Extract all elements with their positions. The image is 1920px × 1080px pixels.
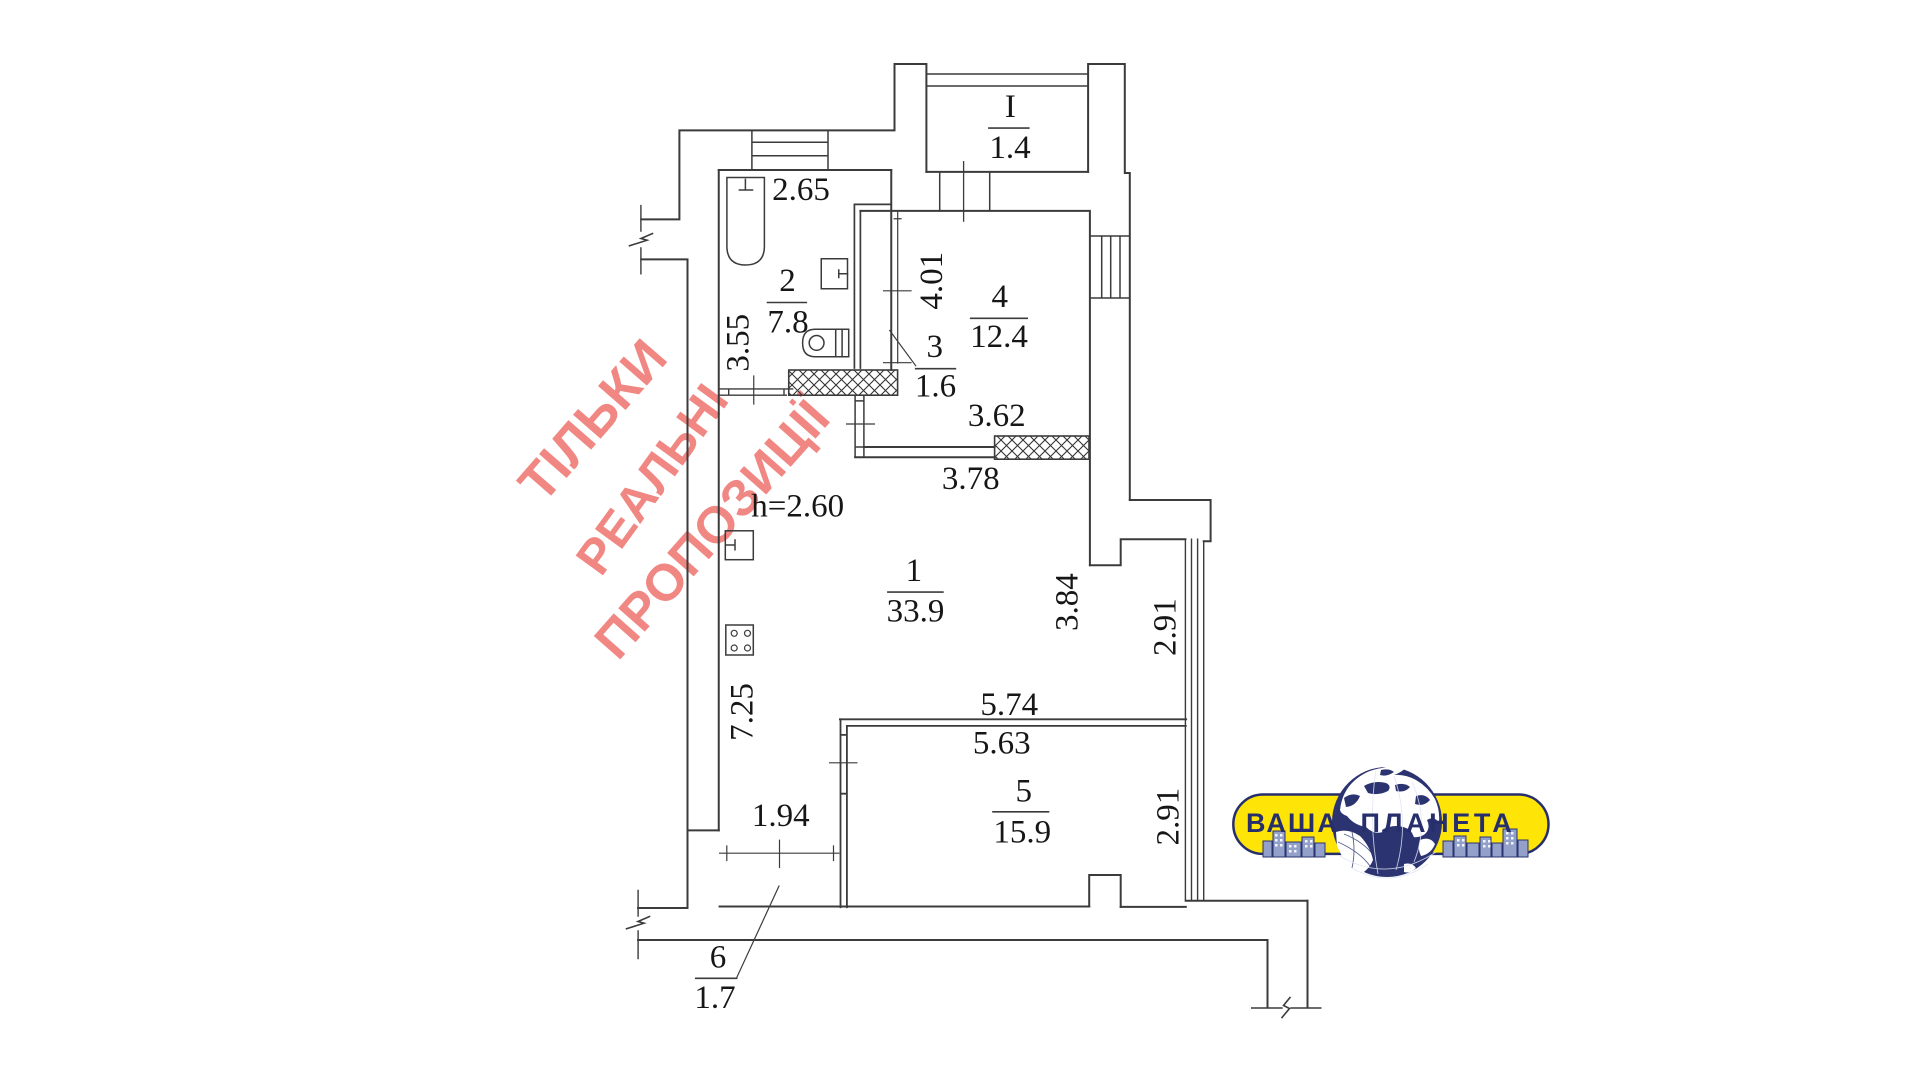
svg-text:h=2.60: h=2.60 bbox=[751, 489, 844, 525]
svg-text:15.9: 15.9 bbox=[993, 814, 1051, 850]
svg-text:1.6: 1.6 bbox=[915, 369, 956, 405]
svg-text:3.78: 3.78 bbox=[942, 461, 1000, 497]
svg-text:2: 2 bbox=[779, 263, 796, 299]
svg-text:1: 1 bbox=[906, 553, 923, 589]
svg-text:1.94: 1.94 bbox=[752, 798, 810, 834]
svg-text:3: 3 bbox=[927, 329, 944, 365]
svg-text:33.9: 33.9 bbox=[887, 594, 945, 630]
svg-text:2.91: 2.91 bbox=[1151, 788, 1187, 846]
svg-text:ВАША: ВАША bbox=[1246, 808, 1339, 838]
svg-text:3.62: 3.62 bbox=[968, 398, 1026, 434]
svg-text:I: I bbox=[1005, 89, 1016, 125]
svg-text:7.25: 7.25 bbox=[725, 683, 761, 741]
svg-text:7.8: 7.8 bbox=[767, 305, 808, 341]
svg-text:2.65: 2.65 bbox=[772, 172, 830, 208]
svg-text:3.84: 3.84 bbox=[1050, 573, 1086, 631]
svg-text:4.01: 4.01 bbox=[914, 252, 950, 310]
svg-text:4: 4 bbox=[991, 279, 1008, 315]
svg-text:5.63: 5.63 bbox=[973, 726, 1031, 762]
svg-text:1.7: 1.7 bbox=[694, 980, 735, 1016]
svg-text:5.74: 5.74 bbox=[980, 687, 1038, 723]
svg-text:2.91: 2.91 bbox=[1148, 598, 1184, 656]
svg-text:5: 5 bbox=[1016, 774, 1033, 810]
svg-text:1.4: 1.4 bbox=[989, 130, 1030, 166]
svg-text:3.55: 3.55 bbox=[721, 314, 757, 372]
svg-text:6: 6 bbox=[710, 940, 727, 976]
svg-text:ПЛАНЕТА: ПЛАНЕТА bbox=[1361, 808, 1516, 838]
svg-text:12.4: 12.4 bbox=[970, 319, 1028, 355]
